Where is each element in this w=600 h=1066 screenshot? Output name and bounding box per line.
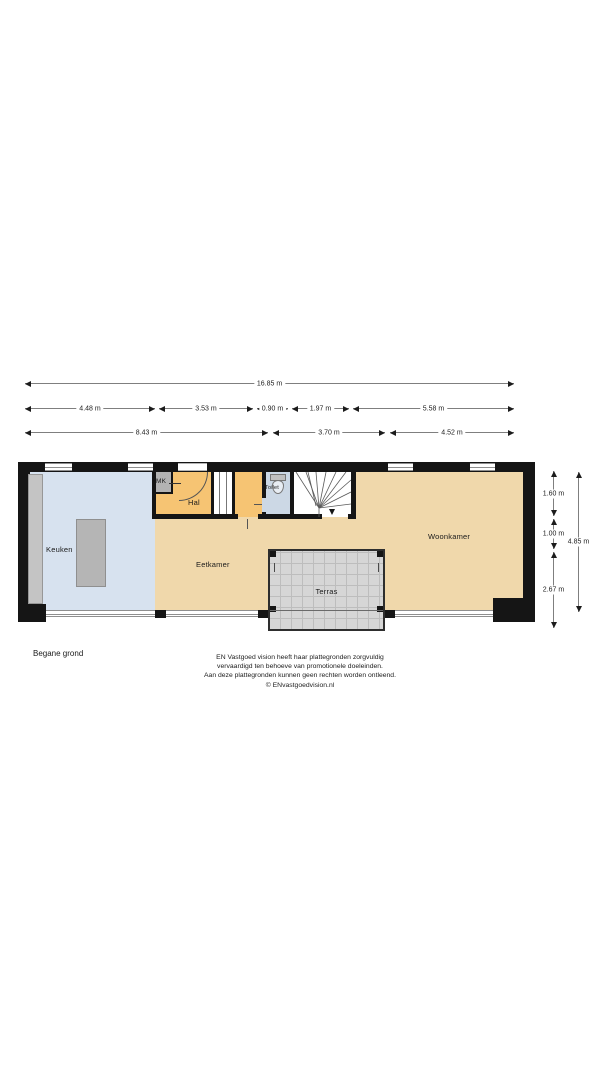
dim-label: 2.67 m xyxy=(541,586,566,595)
wall-hal-stairflight xyxy=(211,472,214,517)
disclaimer-line: EN Vastgoed vision heeft haar plattegron… xyxy=(0,653,600,662)
door-leaf-toilet xyxy=(254,504,262,505)
dim-label: 0.90 m xyxy=(259,405,286,412)
terrace-post xyxy=(270,551,276,557)
dim-label: 1.97 m xyxy=(307,405,334,412)
woonkamer-upper-floor xyxy=(356,472,523,518)
winder-stairs xyxy=(294,472,351,517)
dim-label: 4.85 m xyxy=(566,538,591,547)
arrow-left-icon xyxy=(273,430,279,436)
wall-bottom-stub2 xyxy=(258,610,268,618)
dim-row2-seg3: 0.90 m xyxy=(257,408,288,409)
disclaimer-line: © ENvastgoedvision.nl xyxy=(0,681,600,690)
arrow-right-icon xyxy=(508,430,514,436)
window-top-2 xyxy=(128,463,153,471)
arrow-left-icon xyxy=(25,430,31,436)
terras-deck: Terras xyxy=(268,549,385,631)
arrow-right-icon xyxy=(379,430,385,436)
arrow-right-icon xyxy=(262,430,268,436)
room-label-keuken: Keuken xyxy=(46,545,73,554)
mk-leader-line xyxy=(169,483,181,484)
arrow-left-icon xyxy=(353,406,359,412)
disclaimer-text: EN Vastgoed vision heeft haar plattegron… xyxy=(0,653,600,690)
kitchen-counter xyxy=(28,474,43,604)
dim-label: 1.00 m xyxy=(541,530,566,539)
room-label-mk: MK xyxy=(156,478,166,485)
dim-label: 4.48 m xyxy=(76,405,103,412)
dim-label: 5.58 m xyxy=(420,405,447,412)
arrow-left-icon xyxy=(390,430,396,436)
room-label-hal: Hal xyxy=(188,498,200,507)
wall-stairflight-corridor xyxy=(232,472,235,517)
entrance-door-opening xyxy=(178,463,207,471)
dim-right-seg1: 1.60 m xyxy=(553,471,554,516)
arrow-left-icon xyxy=(159,406,165,412)
dim-label: 16.85 m xyxy=(254,380,285,387)
room-label-toilet: Toilet xyxy=(265,485,279,491)
terrace-post xyxy=(377,551,383,557)
arrow-right-icon xyxy=(508,381,514,387)
terrace-threshold-line xyxy=(270,610,383,611)
wall-bottom-stub1 xyxy=(155,610,166,618)
disclaimer-line: Aan deze plattegronden kunnen geen recht… xyxy=(0,671,600,680)
wall-corner-bottom-right xyxy=(493,598,535,622)
arrow-down-icon xyxy=(551,510,557,516)
window-bottom-1 xyxy=(46,610,155,617)
arrow-right-icon xyxy=(343,406,349,412)
arrow-up-icon xyxy=(551,552,557,558)
stair-tread-line xyxy=(226,472,227,517)
terrace-door-tick xyxy=(378,563,379,572)
arrow-down-icon xyxy=(551,543,557,549)
room-label-eetkamer: Eetkamer xyxy=(196,560,230,569)
arrow-right-icon xyxy=(149,406,155,412)
dim-total-width: 16.85 m xyxy=(25,383,514,384)
window-top-4 xyxy=(470,463,495,471)
room-label-terras: Terras xyxy=(315,587,337,596)
arrow-left-icon xyxy=(25,381,31,387)
wall-bottom-stub3 xyxy=(385,610,395,618)
terrace-post xyxy=(270,606,276,612)
arrow-right-icon xyxy=(508,406,514,412)
terrace-post xyxy=(377,606,383,612)
dim-right-seg3: 2.67 m xyxy=(553,552,554,628)
dim-label: 3.70 m xyxy=(315,429,342,436)
dim-row2-seg2: 3.53 m xyxy=(159,408,253,409)
arrow-up-icon xyxy=(576,472,582,478)
wall-corner-bottom-left xyxy=(18,604,46,622)
arrow-up-icon xyxy=(551,471,557,477)
arrow-left-icon xyxy=(25,406,31,412)
stair-direction-arrow-icon xyxy=(329,509,335,515)
arrow-down-icon xyxy=(576,606,582,612)
kitchen-island xyxy=(76,519,106,587)
terrace-door-tick xyxy=(274,563,275,572)
dim-right-total: 4.85 m xyxy=(578,472,579,612)
stair-tread-line xyxy=(219,472,220,517)
dim-label: 4.52 m xyxy=(438,429,465,436)
wall-halblock-bottom-1 xyxy=(152,514,238,519)
dim-row3-seg3: 4.52 m xyxy=(390,432,514,433)
toilet-door-gap xyxy=(262,498,266,512)
door-leaf-hal-eetkamer xyxy=(247,519,248,529)
dim-right-seg2: 1.00 m xyxy=(553,519,554,549)
window-top-3 xyxy=(388,463,413,471)
dim-label: 1.60 m xyxy=(541,489,566,498)
dim-label: 3.53 m xyxy=(192,405,219,412)
dim-row2-seg1: 4.48 m xyxy=(25,408,155,409)
arrow-up-icon xyxy=(551,519,557,525)
dim-label: 8.43 m xyxy=(133,429,160,436)
window-top-1 xyxy=(45,463,72,471)
wall-stairwell-woonkamer xyxy=(351,472,356,519)
arrow-right-icon xyxy=(247,406,253,412)
arrow-left-icon xyxy=(292,406,298,412)
disclaimer-line: vervaardigd ten behoeve van promotionele… xyxy=(0,662,600,671)
wall-top xyxy=(18,462,535,472)
arrow-down-icon xyxy=(551,622,557,628)
window-bottom-3 xyxy=(395,610,493,617)
stair-flight-area xyxy=(213,472,233,517)
room-label-woonkamer: Woonkamer xyxy=(428,532,470,541)
dim-row3-seg1: 8.43 m xyxy=(25,432,268,433)
dim-row2-seg4: 1.97 m xyxy=(292,408,349,409)
window-bottom-2 xyxy=(166,610,258,617)
dim-row3-seg2: 3.70 m xyxy=(273,432,385,433)
floorplan-page: 16.85 m 4.48 m 3.53 m 0.90 m 1.97 m 5.58… xyxy=(0,0,600,1066)
dim-row2-seg5: 5.58 m xyxy=(353,408,514,409)
